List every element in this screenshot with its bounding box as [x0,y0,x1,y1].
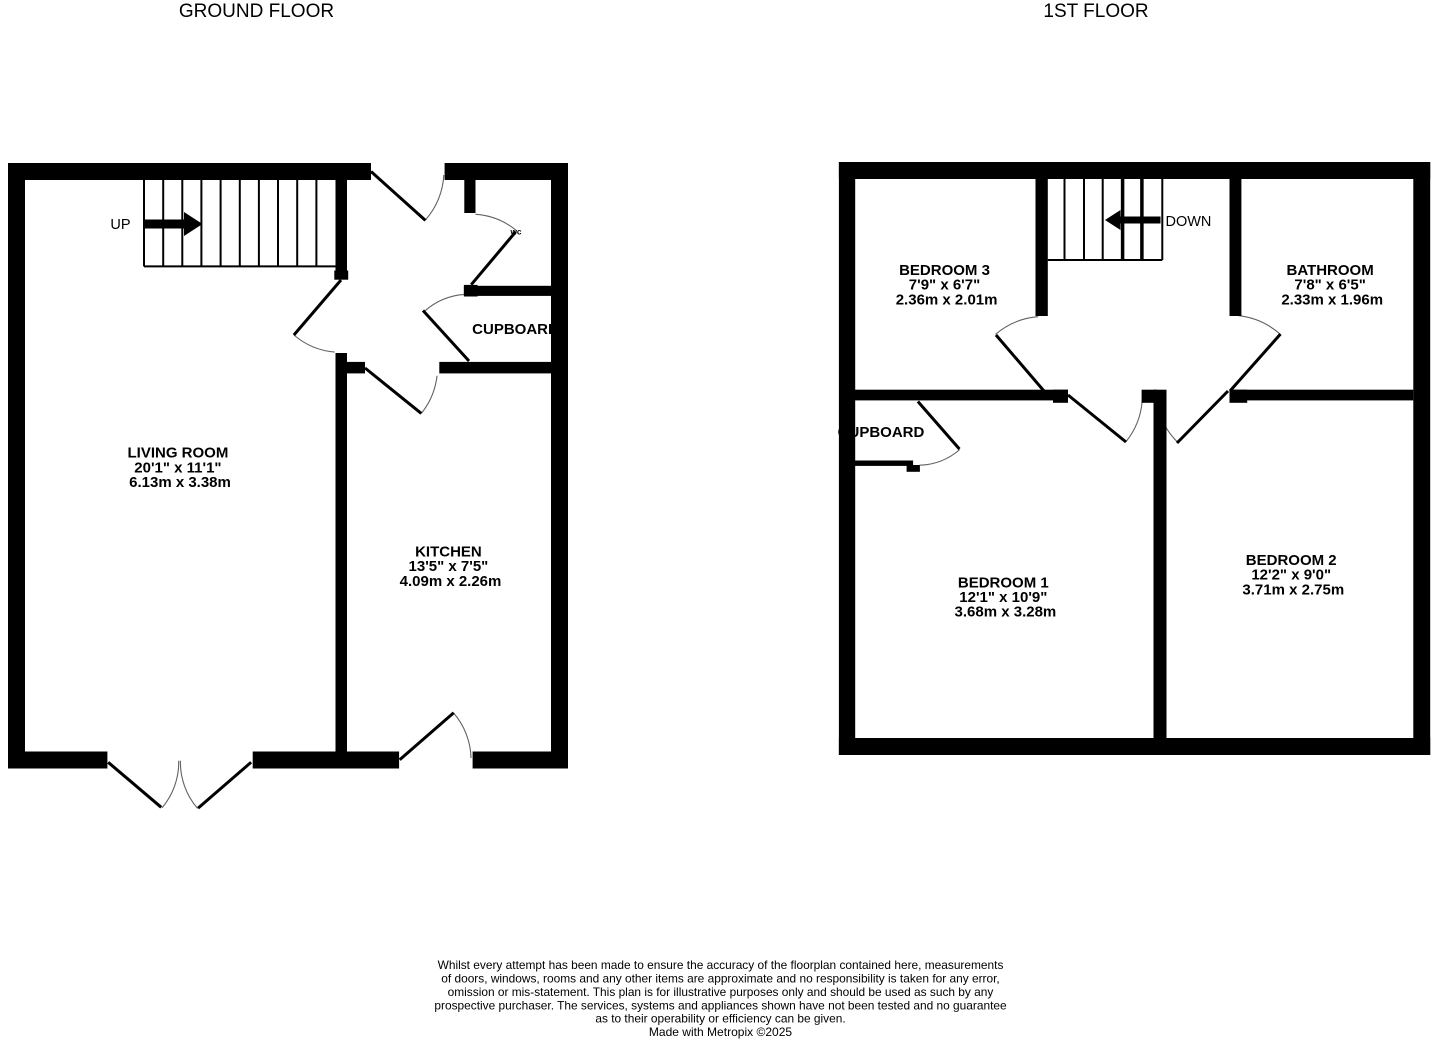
svg-text:1ST FLOOR: 1ST FLOOR [1043,1,1148,22]
svg-text:prospective purchaser. The ser: prospective purchaser. The services, sys… [434,998,1007,1012]
svg-text:GROUND FLOOR: GROUND FLOOR [179,1,334,22]
svg-text:BEDROOM 1 12'1" x 10'9" 3.68m: BEDROOM 1 12'1" x 10'9" 3.68m x 3.28m [955,574,1057,620]
svg-text:BATHROOM 7'8" x 6'5" 2.33m x: BATHROOM 7'8" x 6'5" 2.33m x 1.96m [1281,262,1383,308]
svg-text:BEDROOM 2 12'2" x 9'0" 3.71m: BEDROOM 2 12'2" x 9'0" 3.71m x 2.75m [1242,552,1344,598]
svg-text:as to their operability or eff: as to their operability or efficiency ca… [595,1012,845,1026]
svg-text:Made with Metropix ©2025: Made with Metropix ©2025 [649,1025,793,1039]
svg-text:UP: UP [110,217,130,233]
svg-text:BEDROOM 3 7'9" x 6'7" 2.36m: BEDROOM 3 7'9" x 6'7" 2.36m x 2.01m [896,262,998,308]
svg-text:of doors, windows, rooms and a: of doors, windows, rooms and any other i… [441,972,999,986]
svg-text:omission or mis-statement. Thi: omission or mis-statement. This plan is … [448,985,994,999]
svg-text:CUPBOARD: CUPBOARD [472,321,559,338]
svg-text:KITCHEN 13'5" x 7'5" 4.09m x: KITCHEN 13'5" x 7'5" 4.09m x 2.26m [400,543,502,589]
svg-text:Whilst every attempt has been: Whilst every attempt has been made to en… [438,958,1004,972]
svg-text:LIVING ROOM 20'1" x 11'1" 6.1: LIVING ROOM 20'1" x 11'1" 6.13m x 3.38m [127,445,232,491]
svg-text:DOWN: DOWN [1166,214,1212,230]
